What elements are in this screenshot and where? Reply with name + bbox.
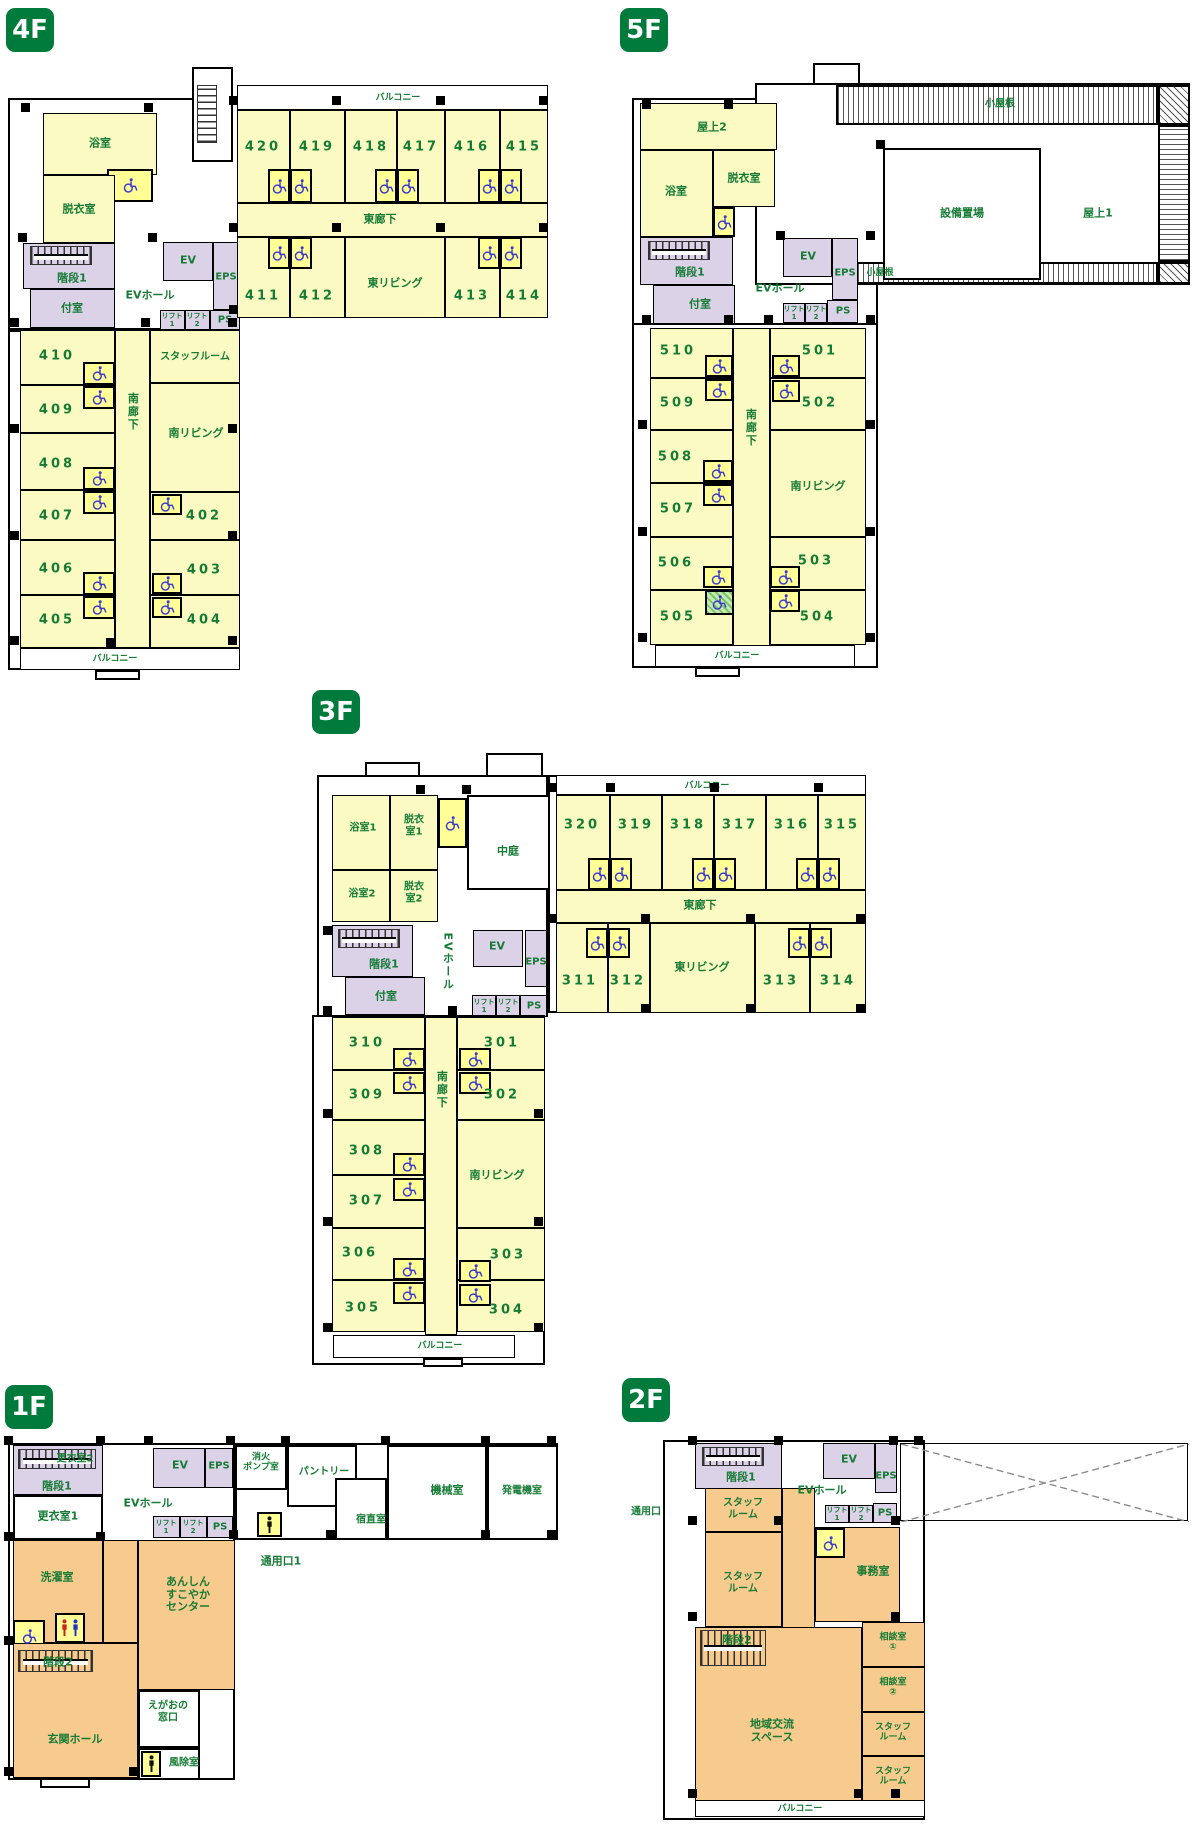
- 1f-night-duty-room: [335, 1478, 387, 1540]
- 4f-balcony-south: [20, 648, 240, 670]
- floorplan-canvas: バルコニー浴室脱衣室階段1付室EVEPSリフト 1リフト 2PSEVホール420…: [0, 0, 1201, 1830]
- 5f-column-marker: [724, 315, 733, 324]
- 4f-column-marker: [106, 638, 115, 647]
- 4f-column-marker: [144, 103, 153, 112]
- 4f-corridor-east: [237, 203, 548, 237]
- 3f-wheelchair-cell: [714, 858, 736, 890]
- 3f-east-living: [650, 923, 755, 1013]
- 4f-column-marker: [10, 531, 19, 540]
- 2f-column-marker: [891, 1612, 900, 1621]
- 5f-eps-shaft: [832, 238, 858, 300]
- 3f-column-marker: [323, 1217, 332, 1226]
- 1f-column-marker: [144, 1436, 153, 1445]
- 5f-wheelchair-cell: [705, 379, 733, 401]
- 4f-column-marker: [436, 223, 445, 232]
- 3f-column-marker: [462, 785, 471, 794]
- 3f-eps-shaft: [525, 930, 547, 987]
- 2f-column-marker: [774, 1436, 783, 1445]
- 4f-wheelchair-cell: [290, 169, 312, 203]
- 1f-column-marker: [129, 1767, 138, 1776]
- 2f-column-marker: [688, 1612, 697, 1621]
- 3f-column-marker: [416, 785, 425, 794]
- 2f-column-marker: [688, 1516, 697, 1525]
- 4f-stairs-1-steps: [30, 246, 92, 265]
- 4f-column-marker: [539, 96, 548, 105]
- 1f-egao-counter: [138, 1690, 200, 1748]
- 4f-column-marker: [229, 305, 238, 314]
- 1f-person-cell: [257, 1512, 282, 1537]
- 4f-wheelchair-cell: [268, 169, 290, 203]
- 2f-column-marker: [889, 1436, 898, 1445]
- 1f-column-marker: [547, 1530, 556, 1539]
- 5f-balcony-south: [655, 645, 855, 667]
- 4f-room-undressing: [43, 175, 115, 243]
- 1f-lift-1: [153, 1516, 180, 1538]
- 3f-wheelchair-cell: [692, 858, 714, 890]
- 4f-column-marker: [10, 318, 19, 327]
- 1f-toilet-cell: [55, 1613, 85, 1643]
- 3f-corridor-east: [556, 890, 866, 923]
- 1f-column-marker: [4, 1532, 13, 1541]
- 4f-column-marker: [21, 103, 30, 112]
- 3f-column-marker: [856, 914, 865, 923]
- 5f-balcony-notch: [695, 667, 740, 677]
- 2f-elevator: [823, 1443, 875, 1479]
- 2f-staff-room-1: [705, 1488, 782, 1532]
- 3f-column-marker: [548, 914, 557, 923]
- 3f-column-marker: [534, 1217, 543, 1226]
- 2f-staff-room-3: [862, 1712, 925, 1756]
- 3f-wheelchair-cell: [459, 1048, 491, 1070]
- 3f-ps-shaft: [520, 995, 547, 1017]
- 4f-column-marker: [18, 233, 27, 242]
- 1f-column-marker: [96, 1436, 105, 1445]
- 3f-courtyard: [467, 795, 556, 890]
- 3f-wheelchair-cell: [393, 1282, 425, 1304]
- 5f-wheelchair-cell: [703, 460, 733, 482]
- 2f-roof-cross-area: [900, 1443, 1188, 1521]
- 4f-column-marker: [539, 223, 548, 232]
- 4f-column-marker: [228, 531, 237, 540]
- 1f-eps-shaft: [205, 1448, 233, 1488]
- 4f-eps-shaft: [213, 242, 240, 310]
- 3f-wheelchair-cell: [393, 1178, 425, 1201]
- 4f-column-marker: [229, 96, 238, 105]
- 2f-balcony: [695, 1800, 925, 1817]
- 1f-column-marker: [381, 1436, 390, 1445]
- 5f-equipment-yard: [883, 148, 1041, 280]
- 4f-column-marker: [229, 223, 238, 232]
- 5f-wheelchair-cell-green: [705, 590, 734, 615]
- 5f-wheelchair-cell: [705, 355, 733, 377]
- 4f-column-marker: [10, 424, 19, 433]
- 5f-room-undressing: [713, 150, 775, 207]
- 5f-column-marker: [638, 633, 647, 642]
- floor-badge-3f: 3F: [312, 690, 360, 734]
- 1f-stairs-1-steps: [18, 1449, 96, 1469]
- 2f-service-entrance-label-label: 通用口: [631, 1506, 661, 1518]
- 3f-wheelchair-cell: [610, 858, 632, 890]
- 4f-lift-2: [185, 310, 210, 330]
- 4f-corridor-south: [115, 330, 150, 648]
- 5f-attic-corner: [1158, 85, 1190, 125]
- 4f-wheelchair-cell: [500, 237, 522, 269]
- 4f-column-marker: [141, 318, 150, 327]
- 4f-wheelchair-cell: [83, 596, 115, 619]
- 1f-service-entrance-1-label-label: 通用口1: [261, 1556, 302, 1569]
- 1f-lift-2: [180, 1516, 207, 1538]
- 1f-stairs-2: [18, 1650, 93, 1672]
- 5f-stairs-1-steps: [648, 241, 710, 260]
- 5f-column-marker: [866, 633, 875, 642]
- 5f-anteroom: [653, 285, 735, 325]
- 3f-wheelchair-cell: [393, 1258, 425, 1280]
- 3f-south-living: [457, 1120, 545, 1228]
- 2f-lift-1: [825, 1505, 849, 1523]
- 3f-wheelchair-cell: [438, 798, 467, 848]
- 4f-elevator: [163, 242, 213, 281]
- 3f-room-undressing-1: [390, 795, 438, 870]
- 4f-anteroom: [30, 289, 115, 328]
- 5f-wheelchair-cell: [703, 566, 733, 588]
- 1f-column-marker: [4, 1636, 13, 1645]
- 3f-column-marker: [548, 783, 557, 792]
- 4f-wheelchair-cell: [152, 597, 182, 618]
- 1f-column-marker: [96, 1532, 105, 1541]
- floor-badge-5f: 5F: [620, 8, 668, 52]
- 4f-room-bath: [43, 113, 157, 175]
- 3f-wheelchair-cell: [586, 928, 608, 958]
- 4f-wheelchair-cell: [83, 491, 115, 514]
- 3f-column-marker: [323, 926, 332, 935]
- 5f-column-marker: [642, 100, 651, 109]
- 4f-column-marker: [228, 424, 237, 433]
- 1f-corridor: [103, 1540, 138, 1643]
- 5f-ps-shaft: [827, 300, 858, 323]
- 3f-wheelchair-cell: [459, 1284, 491, 1306]
- 5f-column-marker: [876, 140, 885, 149]
- 3f-column-marker: [856, 1004, 865, 1013]
- 5f-wheelchair-cell: [770, 590, 800, 612]
- 5f-south-living: [770, 430, 866, 537]
- 4f-lift-1: [160, 310, 185, 330]
- 5f-column-marker: [776, 231, 785, 240]
- 3f-lift-1: [472, 995, 496, 1017]
- 3f-wheelchair-cell: [459, 1260, 491, 1282]
- 2f-lift-2: [849, 1505, 873, 1523]
- 4f-wheelchair-cell: [83, 362, 115, 385]
- 5f-column-marker: [866, 420, 875, 429]
- 3f-wheelchair-cell: [393, 1153, 425, 1176]
- 4f-wheelchair-cell: [83, 467, 115, 490]
- 1f-person-cell: [141, 1751, 161, 1777]
- 1f-column-marker: [326, 1530, 335, 1539]
- 3f-anteroom: [345, 977, 425, 1015]
- 1f-column-marker: [4, 1436, 13, 1445]
- 2f-eps-shaft: [875, 1443, 897, 1493]
- 3f-elevator: [473, 930, 523, 967]
- 3f-room-bath-2: [332, 870, 390, 922]
- 3f-column-marker: [448, 1006, 457, 1015]
- 4f-column-marker: [332, 96, 341, 105]
- 3f-wheelchair-cell: [393, 1072, 425, 1094]
- 4f-south-living: [150, 383, 240, 492]
- 4f-staff-room: [150, 330, 240, 383]
- 2f-stairs-2: [700, 1630, 766, 1666]
- 5f-wheelchair-cell: [772, 355, 800, 377]
- 1f-column-marker: [226, 1436, 235, 1445]
- 2f-column-marker: [774, 1516, 783, 1525]
- 5f-column-marker: [866, 231, 875, 240]
- 5f-room-bath: [640, 150, 713, 237]
- 2f-staff-room-2: [705, 1532, 782, 1627]
- 2f-column-marker: [891, 1789, 900, 1798]
- 4f-column-marker: [228, 636, 237, 645]
- 3f-wheelchair-cell: [393, 1048, 425, 1070]
- 1f-fire-pump-room: [235, 1445, 287, 1490]
- 3f-column-marker: [534, 1109, 543, 1118]
- 4f-east-living: [345, 237, 445, 318]
- 4f-wheelchair-cell: [152, 573, 182, 594]
- 2f-column-marker: [688, 1789, 697, 1798]
- floor-badge-2f: 2F: [622, 1378, 670, 1422]
- 4f-wheelchair-cell: [397, 169, 419, 203]
- 1f-column-marker: [547, 1436, 556, 1445]
- 1f-anshin-sukoyaka-center: [138, 1540, 235, 1690]
- 2f-stairs-1-steps: [702, 1447, 764, 1466]
- 5f-lift-1: [783, 303, 805, 323]
- 3f-column-marker: [323, 1323, 332, 1332]
- 5f-wheelchair-cell: [770, 566, 800, 588]
- 3f-wheelchair-cell: [796, 858, 818, 890]
- 2f-column-marker: [891, 1516, 900, 1525]
- 2f-consult-room-1: [862, 1622, 925, 1667]
- 2f-corridor: [782, 1488, 815, 1628]
- 5f-column-marker: [642, 315, 651, 324]
- 4f-wheelchair-cell: [268, 237, 290, 269]
- 1f-entrance-notch: [40, 1778, 90, 1788]
- 3f-balcony-south: [333, 1335, 515, 1358]
- 3f-balcony-notch: [423, 1358, 463, 1367]
- 3f-column-marker: [534, 1323, 543, 1332]
- 5f-attic-strip-top: [836, 85, 1158, 125]
- 4f-column-marker: [228, 318, 237, 327]
- 5f-wheelchair-cell: [713, 207, 735, 237]
- 5f-attic-strip-right: [1158, 125, 1190, 262]
- 3f-column-marker: [641, 914, 650, 923]
- 5f-rooftop-2: [640, 103, 777, 150]
- 2f-consult-room-2: [862, 1667, 925, 1712]
- 5f-lift-2: [805, 303, 827, 323]
- 4f-wheelchair-cell: [478, 237, 500, 269]
- 3f-wheelchair-cell: [810, 928, 832, 958]
- 2f-column-marker: [688, 1436, 697, 1445]
- 4f-wheelchair-cell: [290, 237, 312, 269]
- 4f-column-marker: [332, 223, 341, 232]
- 3f-column-marker: [814, 783, 823, 792]
- 5f-corridor-south: [733, 328, 770, 648]
- 3f-wheelchair-cell: [588, 858, 610, 890]
- 5f-column-marker: [724, 100, 733, 109]
- 5f-attic-corner: [1158, 262, 1190, 284]
- 3f-stairs-1-steps: [338, 929, 400, 948]
- 5f-column-marker: [638, 420, 647, 429]
- 1f-elevator: [153, 1448, 205, 1488]
- 3f-column-marker: [710, 783, 719, 792]
- 4f-wheelchair-cell: [83, 572, 115, 595]
- 3f-wheelchair-cell: [608, 928, 630, 958]
- 2f-wheelchair-cell: [815, 1528, 845, 1558]
- 3f-column-marker: [323, 1109, 332, 1118]
- 3f-room-undressing-2: [390, 870, 438, 922]
- floor-badge-1f: 1F: [5, 1385, 53, 1429]
- 4f-column-marker: [436, 96, 445, 105]
- 1f-column-marker: [229, 1530, 238, 1539]
- 4f-stair-tower-steps: [197, 85, 217, 143]
- 4f-column-marker: [148, 233, 157, 242]
- 3f-wheelchair-cell: [459, 1072, 491, 1094]
- 4f-wheelchair-cell: [152, 494, 182, 515]
- 2f-column-marker: [914, 1436, 923, 1445]
- 1f-column-marker: [481, 1436, 490, 1445]
- 1f-column-marker: [481, 1530, 490, 1539]
- 3f-column-marker: [641, 1004, 650, 1013]
- 3f-wheelchair-cell: [818, 858, 840, 890]
- 4f-wheelchair-cell: [500, 169, 522, 203]
- 4f-wheelchair-cell: [375, 169, 397, 203]
- 1f-generator-room: [487, 1445, 558, 1540]
- 1f-column-marker: [281, 1436, 290, 1445]
- 5f-wheelchair-cell: [703, 484, 733, 506]
- 3f-wheelchair-cell: [788, 928, 810, 958]
- 4f-wheelchair-cell: [83, 386, 115, 409]
- 4f-column-marker: [10, 636, 19, 645]
- 1f-machine-room: [387, 1445, 487, 1540]
- 3f-column-marker: [606, 783, 615, 792]
- 3f-column-marker: [323, 1006, 332, 1015]
- 2f-column-marker: [854, 1789, 863, 1798]
- 5f-column-marker: [866, 527, 875, 536]
- 4f-balcony-east: [237, 85, 548, 110]
- 5f-column-marker: [638, 527, 647, 536]
- 3f-column-marker: [746, 914, 755, 923]
- 3f-lift-2: [496, 995, 520, 1017]
- 3f-room-bath-1: [332, 795, 390, 870]
- 3f-corridor-south: [425, 1017, 457, 1335]
- 4f-balcony-notch: [95, 670, 140, 680]
- 5f-wheelchair-cell: [772, 380, 800, 402]
- 1f-column-marker: [4, 1767, 13, 1776]
- 4f-wheelchair-cell: [478, 169, 500, 203]
- floor-badge-4f: 4F: [6, 8, 54, 52]
- 5f-elevator: [783, 238, 832, 277]
- 5f-column-marker: [764, 315, 773, 324]
- 5f-column-marker: [866, 315, 875, 324]
- 1f-dressing-room-1: [13, 1495, 103, 1540]
- 3f-column-marker: [746, 1004, 755, 1013]
